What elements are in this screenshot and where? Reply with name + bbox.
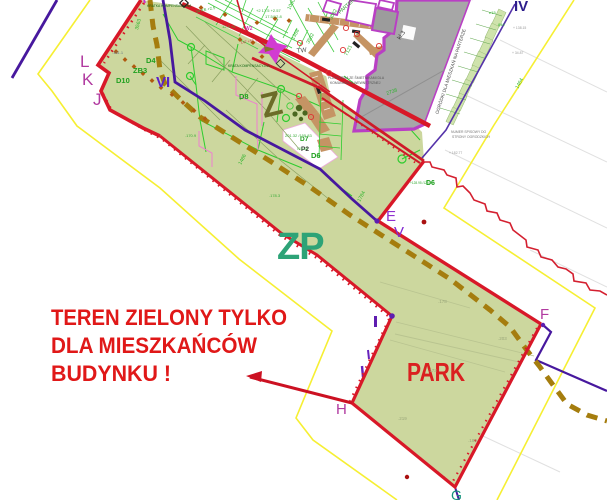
svg-text:+ 138.15: + 138.15: [513, 26, 526, 30]
svg-text:H: H: [336, 401, 347, 418]
svg-text:.188: .188: [468, 438, 477, 443]
svg-text:D4: D4: [146, 56, 156, 65]
svg-text:ZB3: ZB3: [133, 66, 147, 75]
svg-text:840: 840: [498, 22, 505, 27]
svg-text:.173: .173: [428, 368, 437, 373]
svg-text:STRONY OGRODZKICH: STRONY OGRODZKICH: [452, 135, 491, 139]
svg-text:J: J: [93, 90, 102, 109]
svg-text:ZP: ZP: [277, 226, 324, 268]
svg-text:BUDYNKU !: BUDYNKU !: [51, 361, 171, 386]
svg-text:.178.3: .178.3: [269, 193, 281, 198]
svg-text:.203: .203: [498, 336, 507, 341]
svg-text:D8: D8: [239, 92, 249, 101]
svg-text:KOMUNIKACJI WEWNĘTRZNEJ: KOMUNIKACJI WEWNĘTRZNEJ: [330, 81, 381, 85]
svg-text:G: G: [451, 487, 462, 500]
svg-text:W2: W2: [245, 26, 253, 32]
svg-text:D10: D10: [116, 76, 130, 85]
svg-text:17.5/12.8: 17.5/12.8: [265, 14, 282, 19]
svg-text:D6: D6: [311, 151, 321, 160]
svg-text:/15.60: /15.60: [297, 146, 309, 151]
svg-text:NUMER SPISOWY DO: NUMER SPISOWY DO: [451, 130, 487, 134]
svg-text:201.32 /155.83: 201.32 /155.83: [285, 133, 312, 138]
svg-text:.181.1: .181.1: [112, 50, 124, 55]
svg-text:+ 182.77: + 182.77: [449, 151, 462, 155]
svg-text:KRATA KOMPENSACYJNA: KRATA KOMPENSACYJNA: [228, 64, 271, 68]
svg-text:V: V: [394, 224, 404, 241]
svg-text:+ 34.87: + 34.87: [512, 51, 524, 55]
svg-text:L: L: [80, 52, 89, 71]
svg-text:VI: VI: [156, 74, 170, 91]
svg-text:e15: e15: [489, 10, 496, 15]
svg-text:DLA MIESZKAŃCÓW: DLA MIESZKAŃCÓW: [51, 333, 258, 358]
svg-text:TEREN ZIELONY TYLKO: TEREN ZIELONY TYLKO: [51, 305, 287, 330]
svg-text:IV: IV: [514, 0, 528, 15]
svg-text:E: E: [386, 208, 396, 225]
svg-text:F: F: [540, 306, 549, 323]
svg-text:PLATFORMA ZE ŚMIETNIKAMI DLA: PLATFORMA ZE ŚMIETNIKAMI DLA: [328, 75, 385, 80]
svg-text:.170.9: .170.9: [185, 133, 197, 138]
svg-text:.178: .178: [438, 299, 447, 304]
svg-text:.219: .219: [398, 416, 407, 421]
svg-text:+2 17.5 +2.57: +2 17.5 +2.57: [256, 8, 281, 13]
svg-text:12.4 +2: 12.4 +2: [222, 24, 236, 29]
svg-text:KRATKA KOMPENSACYJNA: KRATKA KOMPENSACYJNA: [147, 4, 192, 8]
svg-text:+128.95 /128.91: +128.95 /128.91: [410, 181, 433, 185]
svg-text:K: K: [82, 70, 94, 89]
